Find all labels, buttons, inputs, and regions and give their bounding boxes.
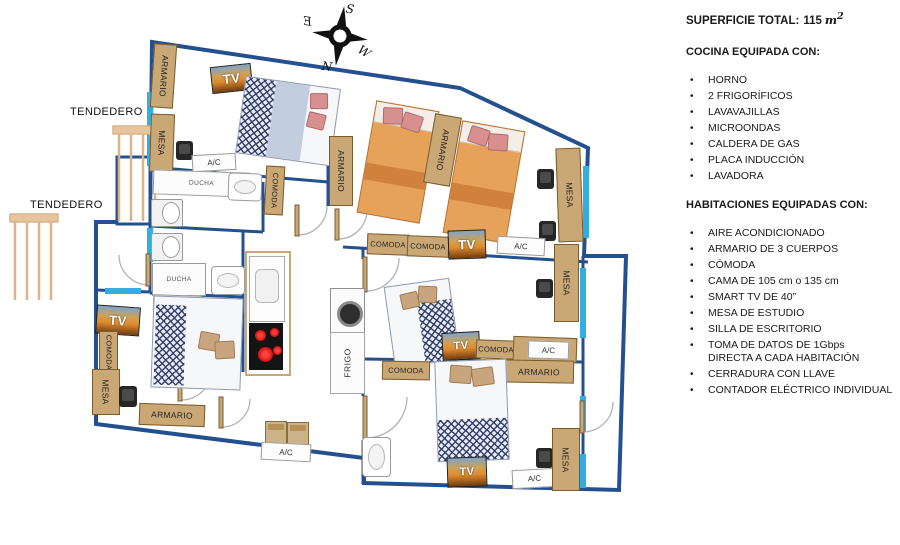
- dresser: COMODA: [367, 233, 410, 255]
- desk: MESA: [149, 114, 175, 173]
- desk-chair: [537, 169, 554, 189]
- terrace-outline: [117, 157, 150, 224]
- pillow: [306, 111, 327, 131]
- ac-unit: A/C: [261, 442, 312, 463]
- compass-east: E: [302, 14, 314, 29]
- door-arc: [366, 397, 407, 438]
- list-item: SMART TV DE 40”: [686, 291, 898, 305]
- pillow: [418, 286, 438, 304]
- burner: [270, 328, 279, 337]
- door-leaf: [146, 254, 150, 286]
- list-item: CERRADURA CON LLAVE: [686, 368, 898, 382]
- burner: [273, 346, 282, 355]
- total-area-value: 115: [803, 15, 822, 27]
- bathroom-sink: [211, 266, 245, 295]
- ac-unit: A/C: [528, 340, 570, 359]
- desk-chair: [536, 448, 553, 468]
- ac-unit: A/C: [497, 236, 546, 256]
- list-item: CAMA DE 105 cm o 135 cm: [686, 275, 898, 289]
- kitchen-sink: [249, 256, 285, 322]
- door-leaf: [363, 257, 367, 292]
- compass-west: W: [355, 42, 374, 61]
- shower: DUCHA: [152, 263, 206, 296]
- list-item: AIRE ACONDICIONADO: [686, 227, 898, 241]
- toilet: [151, 199, 183, 227]
- wardrobe: ARMARIO: [139, 403, 206, 427]
- washing-machine: [330, 288, 365, 334]
- door-leaf: [363, 396, 367, 439]
- list-item: HORNO: [686, 74, 898, 88]
- tv: TV: [448, 229, 487, 259]
- pillow: [214, 340, 235, 359]
- room-equipment-list: AIRE ACONDICIONADO ARMARIO DE 3 CUERPOS …: [686, 227, 898, 398]
- total-area-label: SUPERFICIE TOTAL:: [686, 15, 799, 27]
- list-item: ARMARIO DE 3 CUERPOS: [686, 243, 898, 257]
- floorplan-page: S N E W TENDEDERO TENDEDERO ARMARIO MESA…: [0, 0, 900, 545]
- induction-hob: [249, 323, 283, 370]
- wardrobe: ARMARIO: [150, 43, 177, 108]
- info-panel: SUPERFICIE TOTAL:115m2 COCINA EQUIPADA C…: [686, 10, 898, 400]
- desk: MESA: [92, 369, 120, 415]
- list-item: PLACA INDUCCIÓN: [686, 154, 898, 168]
- pillow: [310, 93, 328, 109]
- desk-chair: [176, 141, 193, 160]
- kitchen-counter: [245, 251, 291, 376]
- list-item: TOMA DE DATOS DE 1GbpsDIRECTA A CADA HAB…: [686, 339, 898, 366]
- compass-north: N: [320, 59, 334, 75]
- door-arc: [298, 206, 327, 235]
- list-item: 2 FRIGORÍFICOS: [686, 90, 898, 104]
- bed-blanket: [154, 305, 187, 386]
- desk: MESA: [555, 148, 583, 243]
- desk: MESA: [554, 244, 579, 322]
- pillow: [488, 133, 509, 151]
- dresser: COMODA: [382, 361, 430, 381]
- bed: [235, 76, 341, 167]
- rooms-section-title: HABITACIONES EQUIPADAS CON:: [686, 199, 898, 213]
- list-item-continuation: DIRECTA A CADA HABITACIÓN: [708, 352, 898, 366]
- list-item: CONTADOR ELÉCTRICO INDIVIDUAL: [686, 384, 898, 398]
- dresser: COMODA: [264, 166, 286, 216]
- burner: [258, 347, 273, 362]
- door-leaf: [219, 397, 223, 428]
- bathroom-sink: [362, 437, 391, 477]
- desk-chair: [536, 279, 553, 298]
- desk-chair: [119, 386, 137, 407]
- tendedero-label: TENDEDERO: [30, 199, 103, 211]
- pillow: [449, 365, 472, 384]
- list-item: CALDERA DE GAS: [686, 138, 898, 152]
- bed: [434, 359, 509, 462]
- dresser: COMODA: [99, 331, 118, 373]
- pillow: [383, 107, 404, 125]
- pillow: [471, 366, 495, 387]
- wardrobe: ARMARIO: [329, 136, 353, 206]
- list-item: CÓMODA: [686, 259, 898, 273]
- toilet: [151, 233, 183, 261]
- total-area-title: SUPERFICIE TOTAL:115m2: [686, 10, 898, 28]
- list-item: LAVAVAJILLAS: [686, 106, 898, 120]
- kitchen-equipment-list: HORNO 2 FRIGORÍFICOS LAVAVAJILLAS MICROO…: [686, 74, 898, 184]
- tv: TV: [446, 456, 487, 487]
- door-leaf: [335, 209, 339, 240]
- clothesline-rack: [10, 214, 58, 300]
- list-item: LAVADORA: [686, 170, 898, 184]
- total-area-unit: m2: [825, 13, 844, 27]
- dresser: COMODA: [407, 235, 450, 257]
- tendedero-label: TENDEDERO: [70, 106, 143, 118]
- door-arc: [119, 255, 149, 285]
- fridge: FRIGO: [330, 332, 365, 394]
- kitchen-section-title: COCINA EQUIPADA CON:: [686, 46, 898, 60]
- door-leaf: [295, 205, 299, 236]
- bed: [150, 295, 243, 390]
- bathroom-sink: [228, 172, 263, 201]
- door-arc: [338, 210, 367, 239]
- list-item: MESA DE ESTUDIO: [686, 307, 898, 321]
- ac-unit: A/C: [512, 468, 558, 489]
- door-arc: [583, 402, 613, 432]
- ac-unit: A/C: [192, 153, 237, 172]
- compass-rose: S N E W: [296, 0, 381, 80]
- dresser: COMODA: [476, 339, 517, 359]
- door-leaf: [580, 401, 584, 433]
- burner: [255, 330, 266, 341]
- list-item: SILLA DE ESCRITORIO: [686, 323, 898, 337]
- list-item: MICROONDAS: [686, 122, 898, 136]
- door-arc: [222, 399, 250, 427]
- desk: MESA: [552, 428, 580, 491]
- bed-blanket: [437, 418, 508, 461]
- compass-south: S: [345, 2, 355, 17]
- wardrobe: ARMARIO: [504, 359, 574, 383]
